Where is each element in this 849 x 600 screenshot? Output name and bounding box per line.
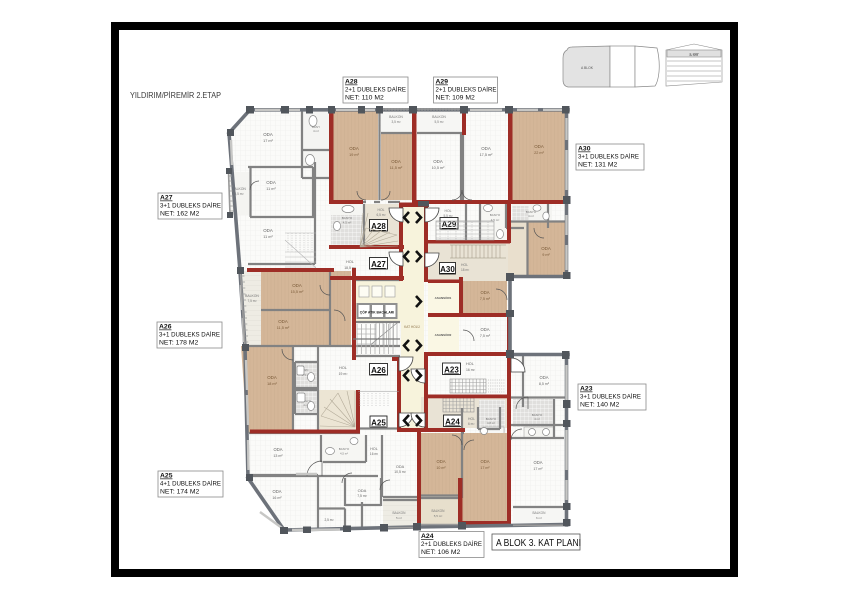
svg-text:ODA: ODA	[278, 319, 288, 324]
svg-text:HOL: HOL	[378, 208, 385, 212]
svg-text:NET: 140 M2: NET: 140 M2	[580, 402, 620, 409]
svg-text:A BLOK: A BLOK	[581, 66, 594, 70]
svg-text:ASANSÖR2: ASANSÖR2	[435, 332, 452, 337]
svg-text:ODA: ODA	[391, 159, 401, 164]
svg-text:3+1 DUBLEKS DAİRE: 3+1 DUBLEKS DAİRE	[160, 201, 221, 210]
svg-text:NET: 174 M2: NET: 174 M2	[160, 489, 200, 496]
svg-text:WC: WC	[304, 368, 310, 372]
svg-text:ODA: ODA	[396, 465, 405, 469]
svg-text:2+1 DUBLEKS DAİRE: 2+1 DUBLEKS DAİRE	[345, 85, 406, 94]
svg-text:10 m²: 10 m²	[436, 466, 446, 470]
svg-text:15,5 m²: 15,5 m²	[291, 290, 305, 294]
svg-text:HOL: HOL	[370, 447, 377, 451]
svg-text:ODA: ODA	[541, 246, 551, 251]
svg-text:NET: 106 M2: NET: 106 M2	[421, 549, 461, 556]
svg-text:ODA: ODA	[358, 488, 367, 493]
svg-text:17,5 m²: 17,5 m²	[480, 153, 494, 157]
svg-text:4 m²: 4 m²	[313, 129, 319, 133]
svg-text:ODA: ODA	[534, 144, 544, 149]
svg-text:16 m²: 16 m²	[370, 452, 378, 456]
svg-text:18 m²: 18 m²	[267, 382, 277, 386]
svg-text:ODA: ODA	[480, 290, 489, 295]
svg-text:4,5 m²: 4,5 m²	[343, 221, 352, 225]
svg-text:4+1 DUBLEKS DAİRE: 4+1 DUBLEKS DAİRE	[160, 479, 221, 488]
svg-text:ODA: ODA	[480, 459, 489, 464]
svg-text:11 m²: 11 m²	[266, 187, 276, 191]
svg-text:A30: A30	[578, 146, 591, 153]
svg-text:19 m²: 19 m²	[339, 372, 349, 376]
svg-text:2+1 DUBLEKS DAİRE: 2+1 DUBLEKS DAİRE	[421, 539, 482, 548]
svg-text:17 m²: 17 m²	[533, 467, 543, 471]
svg-text:BALKON: BALKON	[393, 511, 407, 515]
svg-text:ODA: ODA	[292, 283, 302, 288]
svg-text:7,5 m²: 7,5 m²	[480, 297, 491, 301]
svg-text:ODA: ODA	[539, 375, 548, 380]
svg-text:A28: A28	[345, 79, 358, 86]
svg-text:3+1 DUBLEKS DAİRE: 3+1 DUBLEKS DAİRE	[578, 152, 639, 161]
svg-text:BALKON: BALKON	[432, 115, 446, 119]
svg-text:BALKON: BALKON	[245, 294, 259, 298]
svg-text:2+1 DUBLEKS DAİRE: 2+1 DUBLEKS DAİRE	[436, 85, 497, 94]
svg-text:HOL: HOL	[468, 417, 475, 421]
svg-text:ODA: ODA	[273, 447, 282, 452]
svg-text:8,5 m²: 8,5 m²	[539, 382, 550, 386]
svg-text:A25: A25	[371, 419, 386, 428]
svg-text:18 m²: 18 m²	[461, 268, 469, 272]
svg-text:2. KAT: 2. KAT	[690, 53, 699, 57]
svg-text:ODA: ODA	[267, 375, 277, 380]
svg-text:5,5 m²: 5,5 m²	[434, 120, 443, 124]
svg-text:A24: A24	[421, 533, 434, 540]
svg-text:A29: A29	[436, 79, 449, 86]
svg-text:11,5 m²: 11,5 m²	[390, 166, 403, 170]
svg-text:A23: A23	[580, 386, 593, 393]
svg-text:10,5 m²: 10,5 m²	[394, 470, 406, 474]
svg-text:NET: 162 M2: NET: 162 M2	[160, 211, 200, 218]
svg-text:ODA: ODA	[263, 228, 273, 233]
svg-text:A BLOK 3. KAT PLANI: A BLOK 3. KAT PLANI	[496, 537, 581, 549]
svg-text:3,5 m²: 3,5 m²	[391, 120, 400, 124]
svg-text:5 m²: 5 m²	[396, 516, 402, 520]
svg-text:4,5 m²: 4,5 m²	[491, 218, 500, 222]
svg-text:BALKON: BALKON	[389, 115, 403, 119]
svg-text:NET: 131 M2: NET: 131 M2	[578, 162, 618, 169]
svg-text:13 m²: 13 m²	[273, 454, 283, 458]
svg-text:NET: 110 M2: NET: 110 M2	[345, 95, 384, 102]
svg-text:ODA: ODA	[436, 459, 445, 464]
svg-text:ODA: ODA	[349, 146, 359, 151]
svg-text:4 m²: 4 m²	[528, 214, 534, 218]
svg-text:ODA: ODA	[263, 132, 273, 137]
svg-text:ODA: ODA	[533, 460, 542, 465]
svg-text:A30: A30	[440, 265, 455, 274]
svg-text:16 m²: 16 m²	[272, 496, 282, 500]
svg-text:A27: A27	[371, 260, 386, 269]
svg-text:4,5 m²: 4,5 m²	[340, 452, 348, 456]
svg-text:11,5 m²: 11,5 m²	[277, 326, 290, 330]
svg-text:2,5 m²: 2,5 m²	[324, 518, 333, 522]
svg-text:ODA: ODA	[480, 327, 489, 332]
svg-text:A26: A26	[159, 324, 172, 331]
svg-text:ASANSÖR1: ASANSÖR1	[435, 295, 452, 300]
svg-text:BALKON: BALKON	[533, 511, 547, 515]
svg-text:HOL: HOL	[466, 362, 474, 366]
svg-text:11 m²: 11 m²	[263, 235, 273, 239]
svg-text:NET: 178 M2: NET: 178 M2	[159, 340, 199, 347]
svg-text:A27: A27	[160, 195, 173, 202]
svg-text:3+1 DUBLEKS DAİRE: 3+1 DUBLEKS DAİRE	[580, 392, 641, 401]
svg-text:A29: A29	[442, 220, 457, 229]
svg-text:17 m²: 17 m²	[263, 139, 273, 143]
svg-text:10,5 m²: 10,5 m²	[432, 166, 446, 170]
svg-text:A24: A24	[445, 418, 460, 427]
svg-text:YILDIRIM/PİREMİR 2.ETAP: YILDIRIM/PİREMİR 2.ETAP	[130, 90, 221, 100]
svg-text:BANYO: BANYO	[339, 447, 350, 451]
svg-text:ODA: ODA	[481, 146, 491, 151]
svg-text:6,5 m²: 6,5 m²	[376, 213, 385, 217]
svg-text:ÇÖP ATIK BACALARI: ÇÖP ATIK BACALARI	[360, 310, 394, 315]
svg-text:NET: 109 M2: NET: 109 M2	[436, 95, 476, 102]
svg-text:HOL: HOL	[445, 209, 452, 213]
svg-text:BALKON: BALKON	[432, 509, 446, 513]
svg-text:3,5 m²: 3,5 m²	[234, 192, 243, 196]
svg-text:ODA: ODA	[266, 180, 276, 185]
svg-text:5,5 m²: 5,5 m²	[434, 514, 443, 518]
svg-text:A23: A23	[444, 366, 459, 375]
svg-text:6 m²: 6 m²	[536, 516, 542, 520]
svg-text:7,5 m²: 7,5 m²	[480, 334, 491, 338]
svg-text:ODA: ODA	[272, 489, 281, 494]
svg-text:HOL: HOL	[346, 260, 354, 264]
svg-text:19 m²: 19 m²	[349, 153, 359, 157]
svg-text:4 m²: 4 m²	[534, 417, 540, 421]
svg-text:HOL: HOL	[339, 366, 347, 370]
svg-text:3+1 DUBLEKS DAİRE: 3+1 DUBLEKS DAİRE	[159, 330, 220, 339]
svg-text:7,5 m²: 7,5 m²	[357, 494, 367, 498]
svg-text:HOL: HOL	[461, 263, 468, 267]
svg-text:6 m²: 6 m²	[468, 422, 474, 426]
svg-text:BANYO: BANYO	[342, 216, 353, 220]
svg-text:BANYO: BANYO	[490, 213, 501, 217]
svg-text:A25: A25	[160, 473, 173, 480]
svg-text:4,8 m²: 4,8 m²	[487, 421, 495, 425]
svg-text:17 m²: 17 m²	[480, 466, 490, 470]
svg-text:KAT HOLÜ: KAT HOLÜ	[404, 325, 420, 329]
svg-text:7,5 m²: 7,5 m²	[247, 299, 256, 303]
svg-text:22 m²: 22 m²	[534, 151, 544, 155]
svg-text:A26: A26	[371, 366, 386, 375]
svg-text:ODA: ODA	[433, 159, 443, 164]
svg-text:16 m²: 16 m²	[466, 368, 476, 372]
svg-text:9 m²: 9 m²	[542, 253, 550, 257]
